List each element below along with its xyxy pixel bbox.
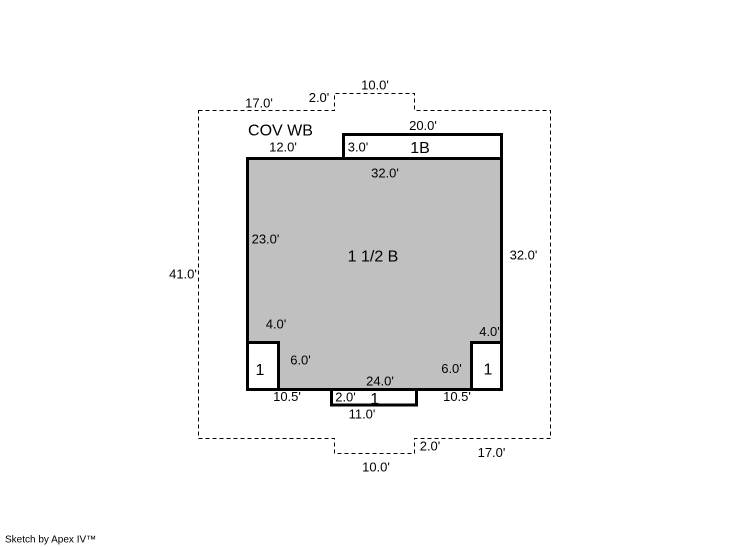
svg-text:32.0': 32.0' (371, 166, 399, 181)
svg-text:6.0': 6.0' (290, 353, 311, 368)
svg-text:24.0': 24.0' (366, 374, 394, 389)
svg-text:11.0': 11.0' (349, 407, 376, 422)
svg-text:10.0': 10.0' (361, 78, 389, 93)
svg-text:10.5': 10.5' (443, 389, 471, 404)
svg-text:2.0': 2.0' (335, 390, 356, 405)
svg-text:1: 1 (484, 361, 493, 378)
svg-text:12.0': 12.0' (269, 140, 297, 155)
svg-text:10.5': 10.5' (273, 389, 301, 404)
svg-text:23.0': 23.0' (252, 232, 280, 247)
svg-text:4.0': 4.0' (479, 324, 500, 339)
svg-text:1: 1 (256, 362, 265, 379)
svg-text:1B: 1B (410, 140, 430, 157)
svg-text:1 1/2 B: 1 1/2 B (348, 248, 399, 265)
svg-text:17.0': 17.0' (478, 445, 506, 460)
svg-text:20.0': 20.0' (409, 118, 437, 133)
svg-text:1: 1 (370, 391, 379, 408)
svg-text:2.0': 2.0' (309, 90, 330, 105)
svg-text:6.0': 6.0' (441, 361, 462, 376)
svg-text:3.0': 3.0' (348, 140, 369, 155)
svg-text:10.0': 10.0' (362, 460, 390, 475)
svg-text:4.0': 4.0' (266, 317, 287, 332)
svg-text:Sketch by Apex IV™: Sketch by Apex IV™ (5, 535, 96, 546)
svg-text:32.0': 32.0' (510, 248, 538, 263)
svg-text:2.0': 2.0' (420, 439, 441, 454)
svg-text:COV WB: COV WB (248, 122, 313, 139)
svg-text:41.0': 41.0' (169, 267, 197, 282)
svg-text:17.0': 17.0' (245, 96, 273, 111)
